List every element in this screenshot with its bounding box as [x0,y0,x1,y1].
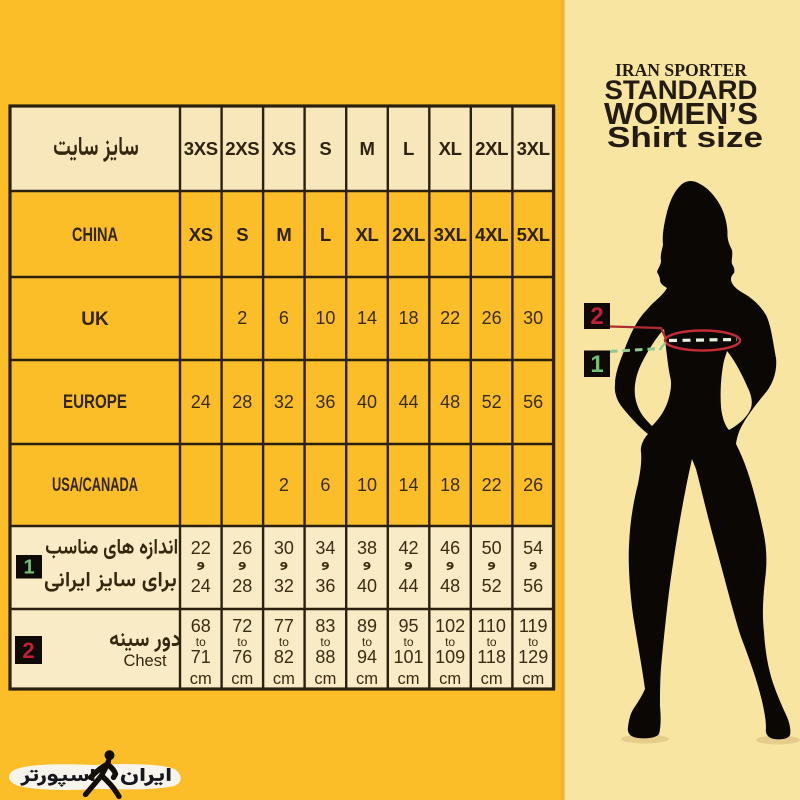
svg-text:10: 10 [357,475,377,495]
svg-text:42: 42 [398,538,418,558]
svg-text:L: L [320,224,331,245]
svg-text:1: 1 [23,557,34,579]
svg-text:36: 36 [315,576,335,596]
svg-text:14: 14 [398,475,418,495]
svg-text:94: 94 [357,647,377,667]
svg-text:83: 83 [315,616,335,636]
svg-text:44: 44 [398,576,418,596]
svg-text:cm: cm [314,670,336,688]
svg-text:56: 56 [523,576,543,596]
svg-text:10: 10 [315,308,335,328]
svg-text:88: 88 [315,647,335,667]
svg-text:48: 48 [440,576,460,596]
svg-text:M: M [359,138,374,159]
svg-text:32: 32 [274,392,294,412]
svg-text:50: 50 [482,538,502,558]
svg-text:L: L [403,138,414,159]
svg-text:cm: cm [481,670,503,688]
svg-text:89: 89 [357,616,377,636]
svg-text:6: 6 [320,475,330,495]
svg-text:3XS: 3XS [184,138,218,159]
svg-text:EUROPE: EUROPE [63,392,127,413]
svg-text:28: 28 [232,392,252,412]
svg-text:28: 28 [232,576,252,596]
svg-text:2: 2 [279,475,289,495]
svg-text:71: 71 [191,647,211,667]
svg-text:cm: cm [439,670,461,688]
svg-text:Chest: Chest [123,652,167,670]
svg-text:3XL: 3XL [517,138,550,159]
svg-text:102: 102 [435,616,465,636]
svg-text:36: 36 [315,392,335,412]
svg-text:52: 52 [482,576,502,596]
svg-text:18: 18 [398,308,418,328]
svg-text:14: 14 [357,308,377,328]
svg-text:26: 26 [482,308,502,328]
svg-text:30: 30 [274,538,294,558]
svg-text:26: 26 [523,475,543,495]
svg-text:32: 32 [274,576,294,596]
svg-text:2XL: 2XL [392,224,425,245]
svg-text:95: 95 [398,616,418,636]
svg-text:3XL: 3XL [434,224,467,245]
svg-text:22: 22 [440,308,460,328]
svg-text:2: 2 [237,308,247,328]
svg-text:22: 22 [482,475,502,495]
svg-text:119: 119 [519,616,548,636]
svg-text:2: 2 [22,638,34,663]
svg-text:34: 34 [315,538,335,558]
svg-text:72: 72 [232,616,252,636]
svg-text:26: 26 [232,538,252,558]
svg-text:cm: cm [190,670,212,688]
svg-text:18: 18 [440,475,460,495]
svg-text:44: 44 [398,392,418,412]
svg-text:22: 22 [191,538,211,558]
svg-text:38: 38 [357,538,377,558]
svg-text:cm: cm [231,670,253,688]
svg-text:CHINA: CHINA [72,225,118,246]
svg-text:6: 6 [279,308,289,328]
svg-text:cm: cm [356,670,378,688]
svg-text:S: S [236,224,248,245]
svg-text:118: 118 [477,647,506,667]
svg-text:40: 40 [357,576,377,596]
svg-text:cm: cm [398,670,420,688]
svg-text:40: 40 [357,392,377,412]
svg-text:56: 56 [523,392,543,412]
svg-text:52: 52 [482,392,502,412]
svg-text:24: 24 [191,576,211,596]
svg-text:Shirt size: Shirt size [607,122,763,154]
svg-text:2XS: 2XS [225,138,259,159]
svg-text:cm: cm [273,670,295,688]
svg-text:USA/CANADA: USA/CANADA [52,475,138,496]
svg-text:2XL: 2XL [475,138,508,159]
svg-text:XS: XS [272,138,296,159]
svg-text:24: 24 [191,392,211,412]
svg-text:XS: XS [189,224,213,245]
svg-text:54: 54 [523,538,543,558]
svg-text:UK: UK [81,309,109,330]
svg-text:101: 101 [393,647,423,667]
svg-text:4XL: 4XL [475,224,508,245]
svg-text:46: 46 [440,538,460,558]
svg-text:M: M [276,224,291,245]
svg-text:2: 2 [590,303,603,330]
svg-text:77: 77 [274,616,294,636]
svg-text:S: S [319,138,331,159]
svg-text:XL: XL [355,224,378,245]
svg-text:110: 110 [477,616,506,636]
svg-text:82: 82 [274,647,294,667]
svg-text:76: 76 [232,647,252,667]
svg-text:cm: cm [522,670,544,688]
svg-text:30: 30 [523,308,543,328]
svg-text:48: 48 [440,392,460,412]
svg-text:109: 109 [435,647,465,667]
svg-text:1: 1 [590,351,603,378]
svg-text:129: 129 [518,647,548,667]
svg-text:68: 68 [191,616,211,636]
svg-text:5XL: 5XL [517,224,550,245]
svg-text:XL: XL [439,138,462,159]
